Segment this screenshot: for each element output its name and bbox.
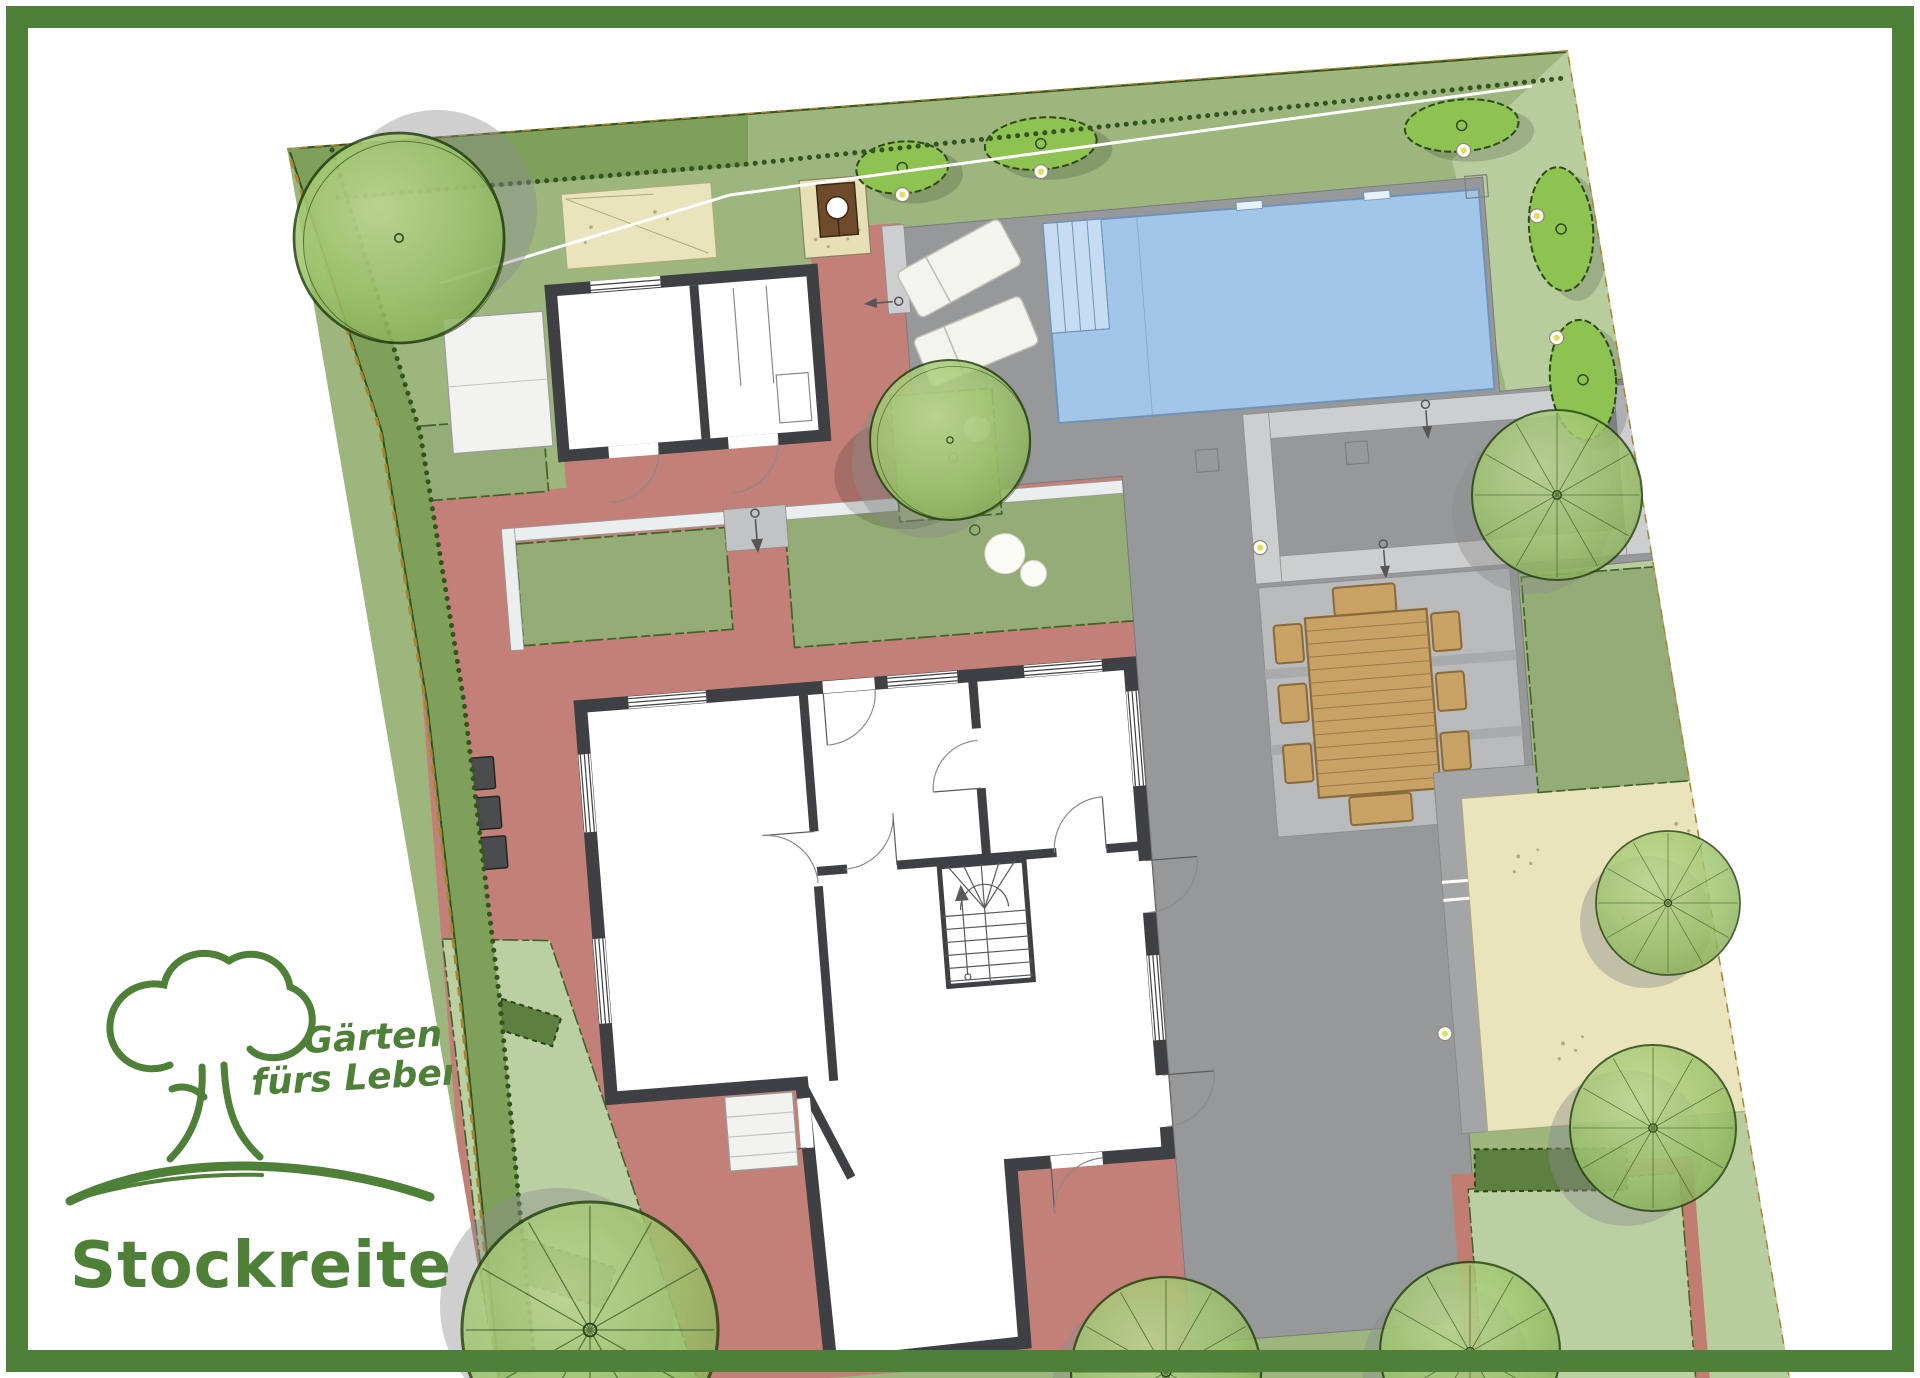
garden-house-walls <box>551 270 825 456</box>
tree-southeast-lower <box>1570 1045 1736 1211</box>
tree-east <box>1472 410 1642 580</box>
tree-planter <box>799 175 871 258</box>
entry-steps <box>725 1092 799 1171</box>
logo-company-name: Stockreiter <box>70 1229 452 1303</box>
tree-centre <box>870 360 1031 520</box>
stockreiter-logo: Gärten fürs Leben Stockreiter <box>52 935 452 1315</box>
tree-large-northwest <box>294 133 505 343</box>
gravel-strip <box>561 183 716 270</box>
planting-bed-east <box>1521 561 1742 792</box>
planter-tree-icon <box>825 196 849 220</box>
garden-plan-page: Gärten fürs Leben Stockreiter <box>0 0 1920 1378</box>
swimming-pool <box>1043 183 1495 423</box>
tree-southeast-upper <box>1596 831 1740 975</box>
